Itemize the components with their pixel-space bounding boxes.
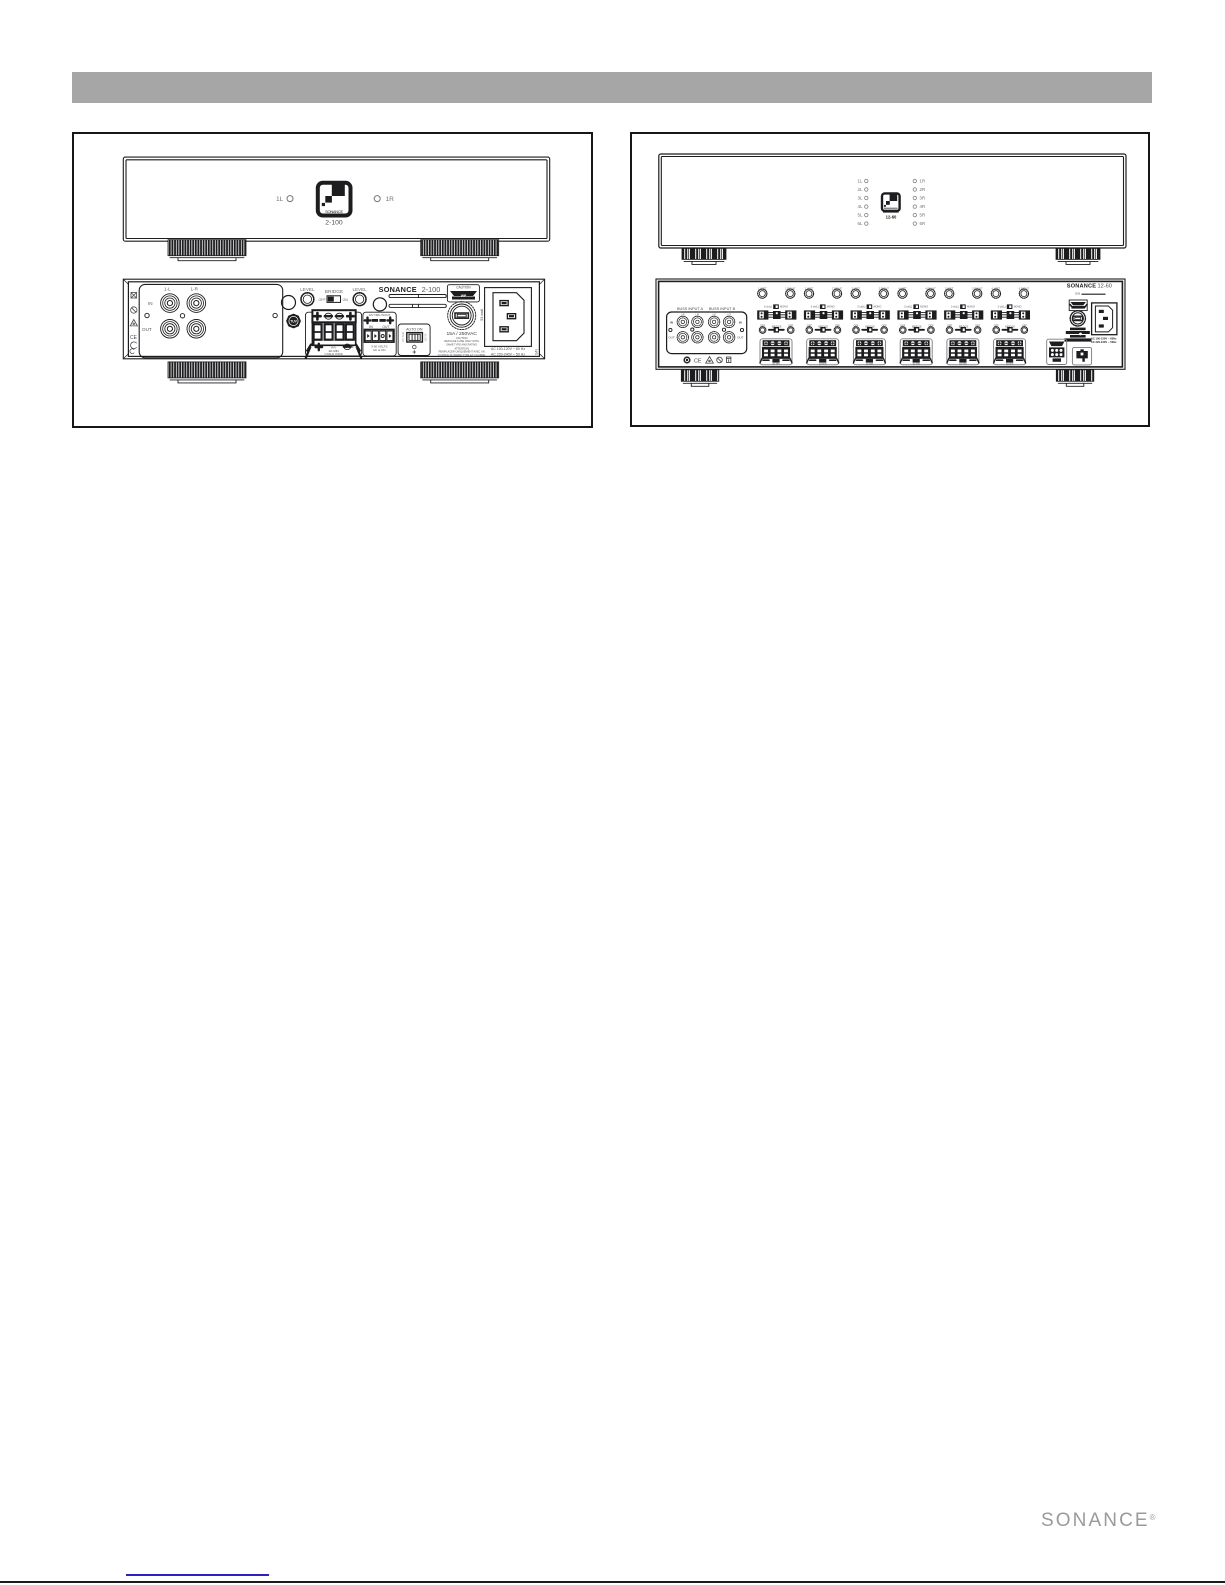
svg-text:1-R: 1-R xyxy=(191,287,199,292)
svg-text:2-ch(L): 2-ch(L) xyxy=(998,306,1006,309)
svg-text:LEVEL: LEVEL xyxy=(352,287,367,292)
svg-text:3R: 3R xyxy=(920,196,926,201)
svg-text:MONO: MONO xyxy=(827,306,835,309)
svg-text:15A / 250VAC: 15A / 250VAC xyxy=(447,331,478,337)
svg-text:BUSS INPUT A: BUSS INPUT A xyxy=(677,307,704,311)
svg-text:OUT: OUT xyxy=(668,336,675,340)
svg-text:SONANCE: SONANCE xyxy=(379,285,417,294)
svg-text:2L: 2L xyxy=(858,187,863,192)
svg-text:IN: IN xyxy=(670,320,673,324)
svg-text:CE: CE xyxy=(130,335,138,341)
svg-text:1R: 1R xyxy=(920,179,926,184)
svg-text:4Ω MIN: 4Ω MIN xyxy=(912,364,920,366)
svg-text:IN: IN xyxy=(369,325,373,329)
svg-text:MONO: MONO xyxy=(1014,306,1022,309)
svg-text:ON: ON xyxy=(343,298,349,302)
svg-text:1L: 1L xyxy=(276,196,284,203)
svg-text:4Ω MIN: 4Ω MIN xyxy=(819,364,827,366)
svg-text:S/N: S/N xyxy=(1075,292,1080,296)
svg-text:L/R: L/R xyxy=(681,313,685,316)
svg-text:S/N: S/N xyxy=(535,349,539,355)
svg-text:3L: 3L xyxy=(858,196,863,201)
svg-text:2-ch(L): 2-ch(L) xyxy=(764,306,772,309)
svg-text:5R: 5R xyxy=(920,213,926,218)
svg-text:1R: 1R xyxy=(386,196,395,203)
svg-text:4L: 4L xyxy=(858,204,863,209)
svg-text:6 RIGHT: 6 RIGHT xyxy=(1019,286,1030,290)
svg-text:4Ω MIN: 4Ω MIN xyxy=(866,364,874,366)
svg-text:WP: WP xyxy=(461,294,467,298)
svg-text:AC or DC: AC or DC xyxy=(373,348,387,352)
svg-text:OFF: OFF xyxy=(319,298,327,302)
svg-text:4Ω MIN: 4Ω MIN xyxy=(959,364,967,366)
svg-text:L/R: L/R xyxy=(712,313,716,316)
svg-text:MONO: MONO xyxy=(920,306,928,309)
svg-text:6L: 6L xyxy=(858,221,863,226)
svg-text:MONO: MONO xyxy=(874,306,882,309)
svg-text:AC 220-240V ~ 50Hz: AC 220-240V ~ 50Hz xyxy=(1091,340,1117,344)
svg-text:12-60: 12-60 xyxy=(1098,283,1112,289)
svg-text:BUSS INPUT B: BUSS INPUT B xyxy=(709,307,736,311)
svg-text:2-ch(L): 2-ch(L) xyxy=(811,306,819,309)
svg-text:5 RIGHT: 5 RIGHT xyxy=(972,286,983,290)
svg-text:FUSIBLE DU MEME TYPE ET CALIBR: FUSIBLE DU MEME TYPE ET CALIBRE xyxy=(438,353,485,357)
svg-text:12V TRIG: 12V TRIG xyxy=(402,332,405,343)
svg-text:CAUTION: CAUTION xyxy=(456,286,471,290)
svg-text:BRIDGE: BRIDGE xyxy=(325,289,343,295)
svg-text:2 RIGHT: 2 RIGHT xyxy=(832,286,843,290)
svg-text:1-L: 1-L xyxy=(164,287,171,292)
svg-text:2-ch(L): 2-ch(L) xyxy=(857,306,865,309)
svg-text:L/R: L/R xyxy=(727,313,731,316)
svg-text:AC 100-120V ~ 60 Hz: AC 100-120V ~ 60 Hz xyxy=(491,347,525,351)
svg-text:IN: IN xyxy=(148,301,153,306)
svg-text:5L: 5L xyxy=(858,213,863,218)
svg-text:CE: CE xyxy=(694,358,702,364)
svg-text:OUT: OUT xyxy=(142,327,152,332)
svg-text:2-ch(L): 2-ch(L) xyxy=(951,306,959,309)
svg-text:3 RIGHT: 3 RIGHT xyxy=(879,286,890,290)
svg-text:AC 220-240V ~ 50 Hz: AC 220-240V ~ 50 Hz xyxy=(491,352,525,356)
svg-text:4 RIGHT: 4 RIGHT xyxy=(925,286,936,290)
svg-text:SAME TYPE AND RATING: SAME TYPE AND RATING xyxy=(446,342,477,346)
svg-text:MONO: MONO xyxy=(780,306,788,309)
svg-text:OUT: OUT xyxy=(737,336,744,340)
svg-text:2-100: 2-100 xyxy=(422,285,441,294)
svg-text:12-60: 12-60 xyxy=(886,214,897,219)
svg-text:IN: IN xyxy=(739,320,742,324)
svg-text:SONANCE: SONANCE xyxy=(1067,283,1096,289)
svg-text:LEVEL: LEVEL xyxy=(300,287,315,292)
svg-text:4Ω MIN: 4Ω MIN xyxy=(1006,364,1014,366)
svg-text:6R: 6R xyxy=(920,221,926,226)
svg-text:53 watt: 53 watt xyxy=(480,309,484,321)
svg-text:AUDIO: AUDIO xyxy=(424,334,427,342)
svg-text:AUTO ON: AUTO ON xyxy=(406,327,423,331)
svg-text:4Ω MIN: 4Ω MIN xyxy=(772,364,780,366)
svg-text:2R: 2R xyxy=(920,187,926,192)
svg-text:MONO: MONO xyxy=(967,306,975,309)
svg-text:AC 100-120V ~ 60Hz: AC 100-120V ~ 60Hz xyxy=(1091,336,1117,340)
svg-text:L/R: L/R xyxy=(696,313,700,316)
svg-text:OUT: OUT xyxy=(382,325,389,329)
svg-text:1L: 1L xyxy=(858,179,863,184)
svg-text:1 RIGHT: 1 RIGHT xyxy=(785,286,796,290)
svg-text:CABLE WIRE: CABLE WIRE xyxy=(324,352,343,356)
svg-text:12V TRIG IN/OUT: 12V TRIG IN/OUT xyxy=(369,313,391,317)
svg-text:2-ch(L): 2-ch(L) xyxy=(904,306,912,309)
svg-text:2-100: 2-100 xyxy=(325,219,343,226)
svg-text:4R: 4R xyxy=(920,204,926,209)
svg-text:SONANCE: SONANCE xyxy=(325,209,343,214)
svg-text:TUV: TUV xyxy=(290,319,297,323)
